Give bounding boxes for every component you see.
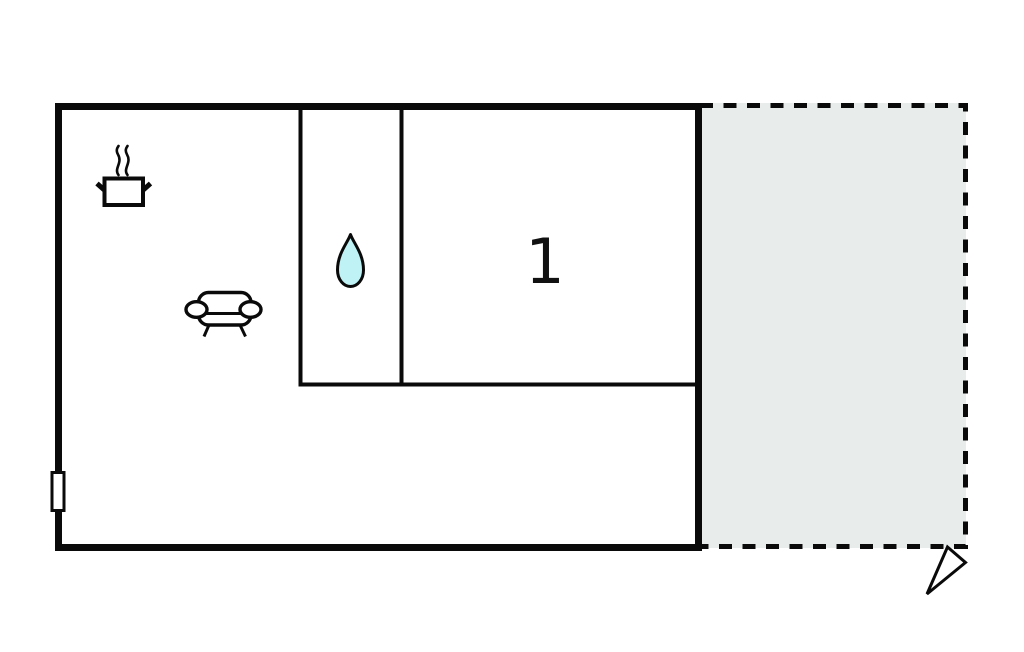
pot-body — [105, 179, 144, 206]
terrace-area — [700, 103, 966, 548]
bedroom-label: 1 — [525, 225, 564, 298]
sofa-armrest-right — [240, 302, 261, 318]
entrance-arrow-icon — [927, 547, 966, 594]
floorplan-drawing: 1 — [0, 0, 1024, 652]
sofa-armrest-left — [186, 302, 207, 318]
terrace-fill — [700, 103, 966, 548]
building-outline — [59, 107, 699, 548]
window-marker — [52, 473, 64, 511]
floorplan-canvas: 1 — [0, 0, 1024, 652]
